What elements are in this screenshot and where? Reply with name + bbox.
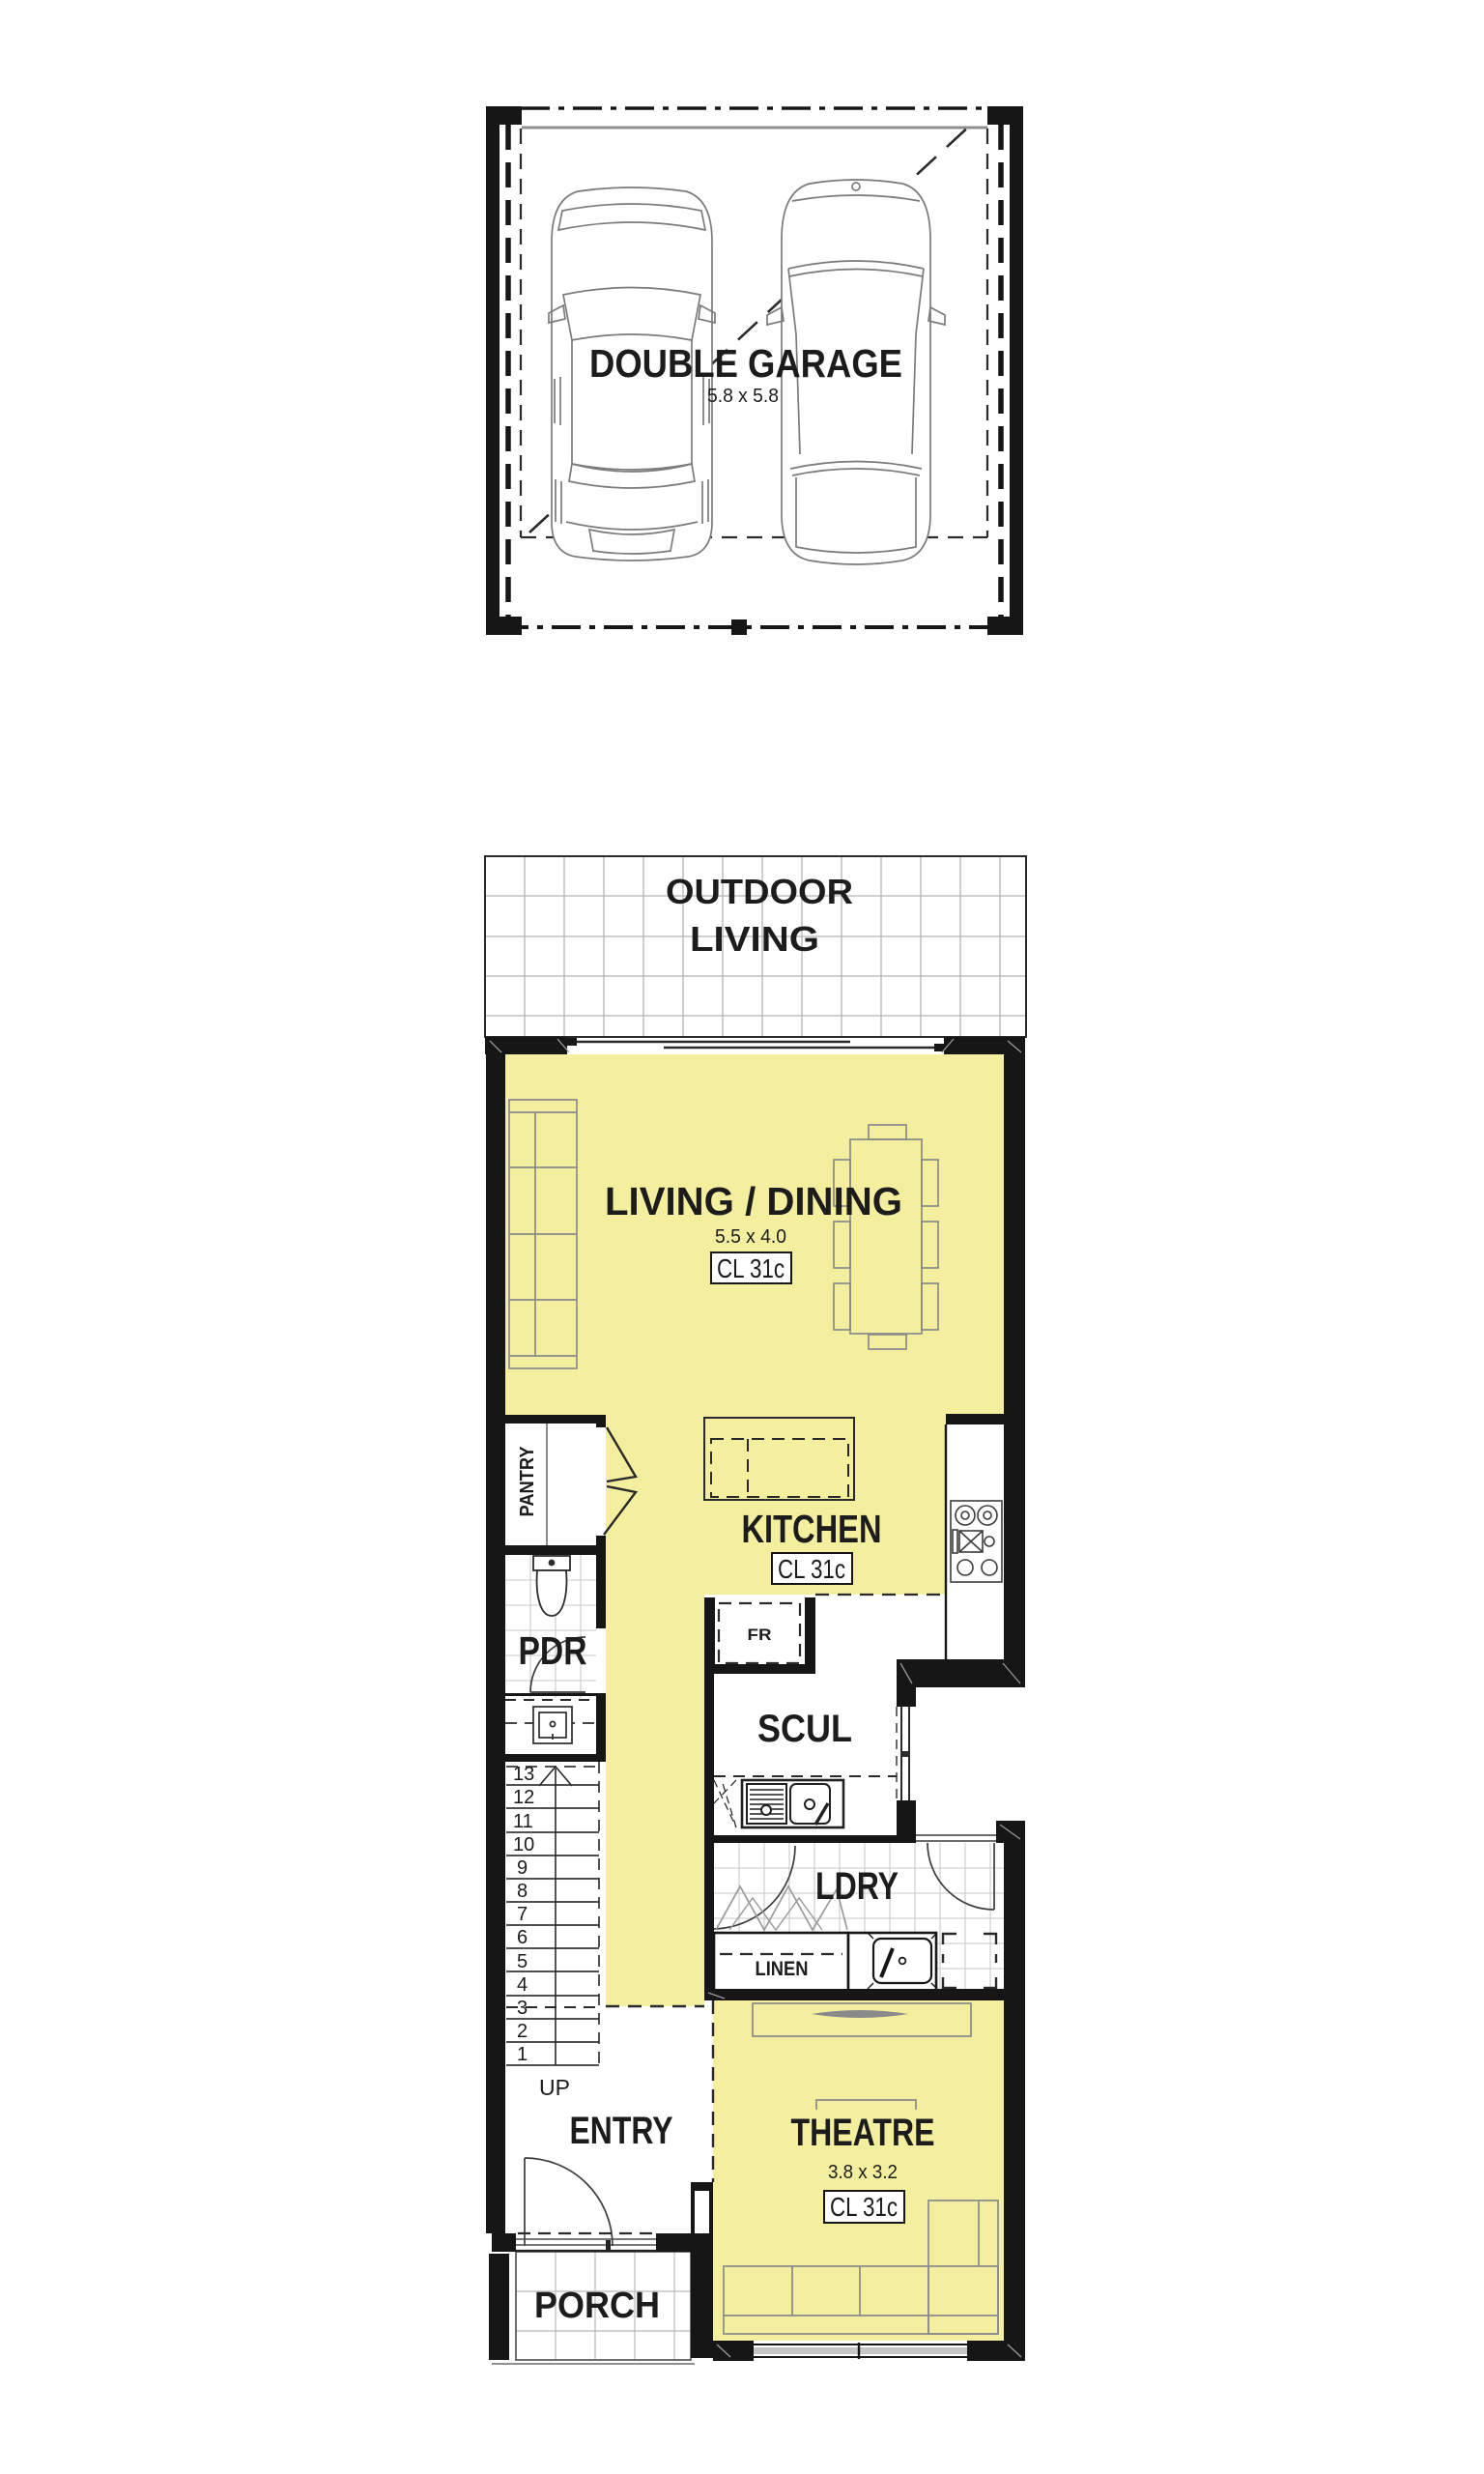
svg-text:PDR: PDR: [519, 1628, 587, 1673]
svg-text:3: 3: [517, 1998, 528, 2019]
svg-text:CL 31c: CL 31c: [717, 1253, 785, 1283]
svg-text:6: 6: [517, 1927, 528, 1948]
svg-text:ENTRY: ENTRY: [570, 2110, 673, 2152]
svg-text:5.8 x 5.8: 5.8 x 5.8: [707, 385, 779, 407]
svg-text:7: 7: [517, 1904, 528, 1925]
svg-text:10: 10: [513, 1834, 534, 1855]
svg-text:3.8 x 3.2: 3.8 x 3.2: [828, 2161, 898, 2183]
svg-text:FR: FR: [748, 1625, 772, 1644]
svg-text:13: 13: [513, 1764, 534, 1785]
svg-text:KITCHEN: KITCHEN: [742, 1507, 882, 1551]
svg-text:CL 31c: CL 31c: [778, 1554, 845, 1584]
svg-text:1: 1: [517, 2044, 528, 2065]
svg-text:THEATRE: THEATRE: [791, 2112, 935, 2154]
svg-text:12: 12: [513, 1787, 534, 1808]
svg-text:LINEN: LINEN: [756, 1958, 809, 1980]
svg-text:5: 5: [517, 1951, 528, 1972]
svg-text:8: 8: [517, 1881, 528, 1902]
svg-text:LDRY: LDRY: [815, 1865, 899, 1908]
svg-text:5.5 x 4.0: 5.5 x 4.0: [715, 1225, 786, 1248]
svg-text:LIVING: LIVING: [690, 919, 819, 959]
svg-text:9: 9: [517, 1857, 528, 1879]
svg-text:LIVING / DINING: LIVING / DINING: [605, 1179, 902, 1223]
svg-text:11: 11: [513, 1811, 533, 1832]
svg-text:UP: UP: [539, 2075, 570, 2100]
svg-text:OUTDOOR: OUTDOOR: [666, 872, 853, 911]
svg-text:CL 31c: CL 31c: [830, 2192, 898, 2222]
svg-text:PANTRY: PANTRY: [517, 1446, 538, 1517]
svg-text:SCUL: SCUL: [757, 1708, 852, 1750]
svg-text:4: 4: [517, 1974, 528, 1996]
svg-text:2: 2: [517, 2021, 528, 2042]
svg-text:DOUBLE GARAGE: DOUBLE GARAGE: [589, 341, 902, 386]
svg-text:PORCH: PORCH: [534, 2286, 660, 2326]
